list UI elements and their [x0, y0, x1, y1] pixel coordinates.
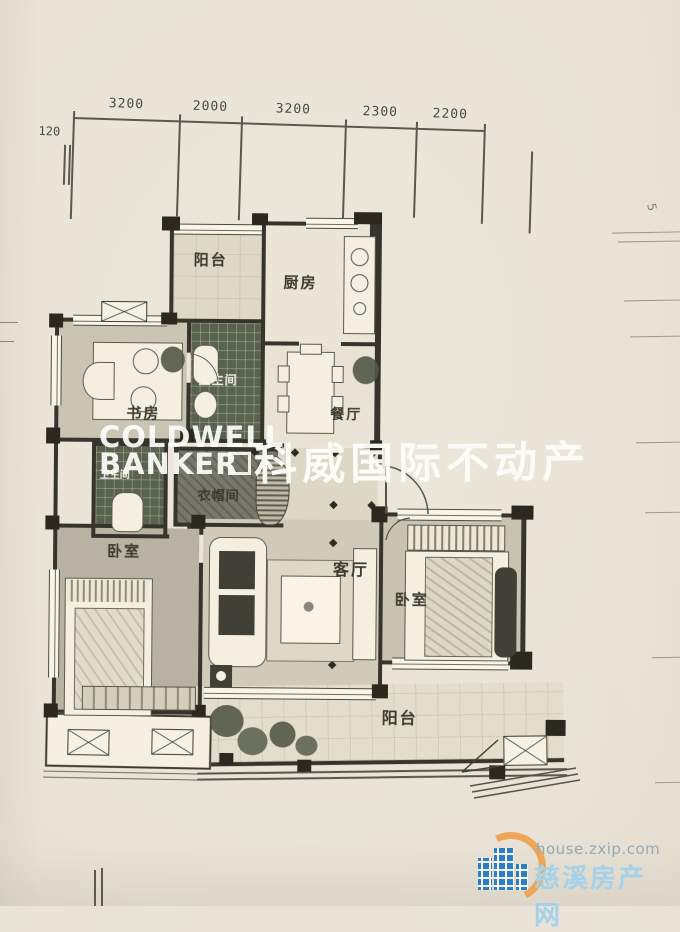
buildings-icon — [478, 858, 492, 890]
window-symbol-icon — [503, 735, 547, 766]
washbasin-icon — [193, 391, 217, 419]
site-url: house.zxip.com — [536, 840, 660, 858]
sofa-cushion — [219, 551, 255, 589]
chair-icon — [278, 365, 290, 382]
balcony-rail-line — [197, 768, 567, 774]
plant-icon — [237, 727, 267, 755]
bed-pillows — [67, 580, 149, 603]
chair-icon — [300, 344, 322, 355]
sliding-door — [204, 687, 376, 701]
room-label-balcony-top: 阳台 — [194, 249, 228, 270]
sink-icon — [351, 248, 369, 266]
plant-icon — [210, 705, 244, 737]
column — [161, 312, 177, 324]
plant-icon — [269, 721, 295, 747]
wall — [169, 227, 174, 323]
wardrobe — [494, 567, 517, 657]
buildings-icon — [494, 848, 514, 890]
room-label-balcony-bottom: 阳台 — [382, 704, 418, 728]
balcony-rail-line — [197, 774, 567, 780]
toilet-icon — [111, 492, 143, 532]
window — [48, 569, 60, 677]
chair-icon — [332, 366, 344, 383]
column — [372, 684, 388, 698]
window-symbol-icon — [101, 301, 147, 322]
plant-icon — [161, 346, 185, 372]
desk-chair-nook — [82, 362, 114, 400]
watermark-cjk: 科威国际不动产 — [254, 427, 591, 493]
column — [46, 427, 60, 443]
room-label-bedroom-left: 卧室 — [107, 540, 141, 561]
column — [162, 216, 180, 230]
room-label-cloakroom: 衣帽间 — [198, 485, 240, 504]
column — [219, 753, 233, 765]
floor-lamp-bulb — [216, 671, 226, 681]
sill-line — [43, 771, 205, 775]
column — [546, 720, 566, 736]
column — [191, 515, 205, 529]
watermark-square-icon — [228, 452, 251, 475]
table-decor-icon — [304, 602, 314, 612]
bed-blanket — [424, 557, 493, 658]
dining-table — [286, 352, 335, 434]
chair-icon — [277, 395, 289, 412]
column — [354, 212, 382, 224]
wall — [520, 514, 526, 664]
wall — [187, 323, 191, 353]
window — [50, 335, 62, 405]
room-label-bathroom-main: 卫生间 — [199, 371, 238, 388]
window-symbol-icon — [67, 729, 109, 756]
column — [49, 313, 63, 327]
column — [489, 765, 505, 779]
stove-burner-icon — [353, 302, 366, 315]
room-label-living: 客厅 — [333, 556, 369, 580]
wall — [341, 342, 379, 346]
edge-tick — [0, 322, 18, 323]
room-label-dining: 餐厅 — [330, 404, 362, 424]
window-symbol-icon — [151, 729, 193, 756]
column — [45, 515, 59, 529]
window — [174, 224, 262, 236]
column — [511, 505, 533, 519]
edge-tick — [94, 870, 96, 906]
bay-window — [45, 713, 212, 770]
window — [397, 509, 501, 522]
room-balcony-top — [173, 229, 264, 322]
site-name: 慈溪房产网 — [534, 858, 670, 932]
plant-icon — [353, 356, 379, 384]
window — [306, 218, 358, 229]
plant-icon — [295, 736, 317, 756]
sill-line — [43, 777, 205, 781]
sofa-cushion — [218, 595, 254, 635]
wall — [265, 341, 299, 345]
bed-headboard — [407, 525, 505, 552]
buildings-icon — [516, 864, 528, 890]
dresser — [82, 686, 196, 711]
column — [252, 213, 268, 225]
room-label-bedroom-right: 卧室 — [395, 588, 429, 609]
column — [297, 760, 311, 772]
wall — [378, 514, 384, 696]
site-logo: house.zxip.com 慈溪房产网 — [470, 836, 670, 898]
edge-tick — [101, 868, 103, 906]
wall — [91, 534, 169, 539]
edge-tick — [0, 341, 14, 342]
photographed-floor-plan-page: { "dimensions": { "side_offset": "120", … — [0, 0, 680, 906]
column — [371, 506, 387, 522]
chair-icon — [133, 348, 159, 374]
stove-burner-icon — [350, 274, 368, 292]
column — [44, 703, 58, 717]
room-label-kitchen: 厨房 — [283, 272, 317, 293]
